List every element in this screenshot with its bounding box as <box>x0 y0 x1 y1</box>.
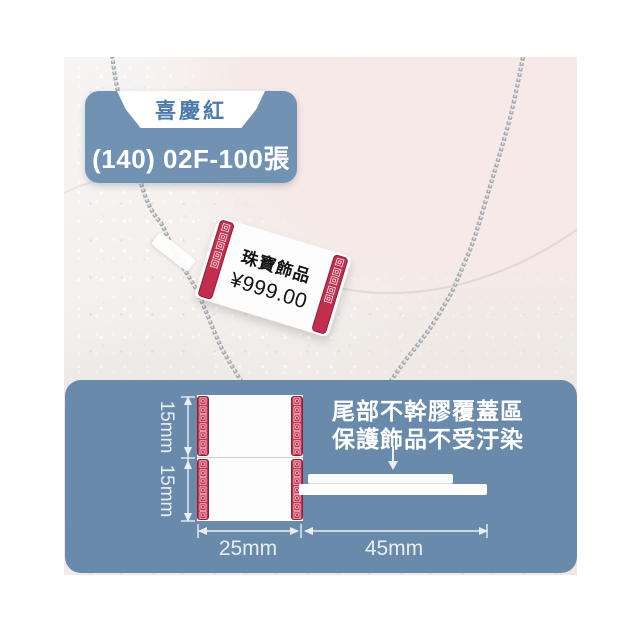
dim-height-top-label: 15mm <box>155 397 177 457</box>
dim-width-label: 25mm <box>208 537 288 561</box>
dim-tail-label: 45mm <box>354 537 434 561</box>
color-model-badge: 喜慶紅 (140) 02F-100張 <box>85 91 297 183</box>
price-tag-text: 珠寶飾品 ¥999.00 <box>227 241 318 314</box>
tail-annotation-line1: 尾部不幹膠覆蓋區 <box>332 397 562 425</box>
tail-annotation-line2: 保護飾品不受汙染 <box>332 425 562 453</box>
necklace-chain-right <box>389 57 523 384</box>
dim-height-bottom-label: 15mm <box>155 461 177 521</box>
model-number-label: (140) 02F-100張 <box>85 135 297 179</box>
spec-diagram-panel: 回回回回回回回 回回回回回回回 回回回回回回回 回回回回回回回 <box>65 380 577 573</box>
tail-annotation: 尾部不幹膠覆蓋區 保護飾品不受汙染 <box>332 397 562 453</box>
badge-color-tab: 喜慶紅 <box>117 91 265 128</box>
color-name-label: 喜慶紅 <box>155 95 227 125</box>
